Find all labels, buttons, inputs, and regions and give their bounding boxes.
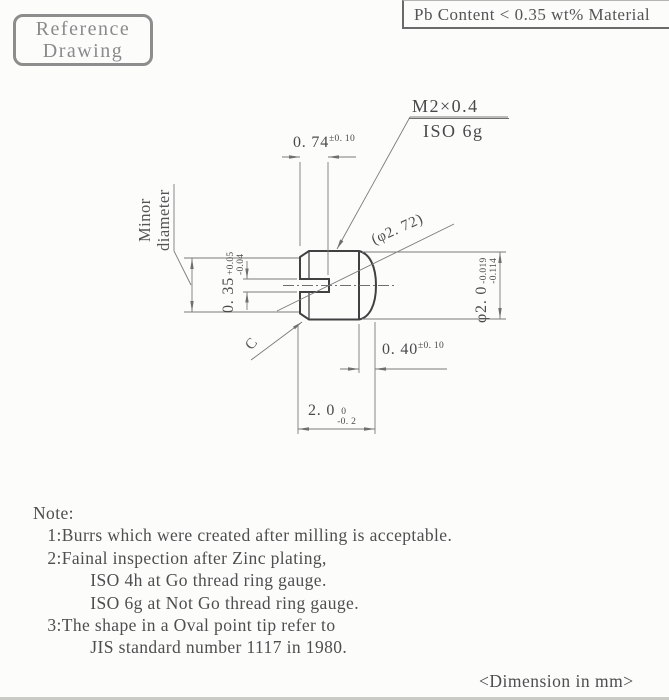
reference-drawing-stamp: Reference Drawing [13,14,153,66]
dim-slot-depth-value: 0. 74 [293,134,329,151]
thread-spec-callout: M2×0.4 ISO 6g [409,96,509,142]
stamp-line1: Reference [36,18,131,40]
note-line: 3:The shape in a Oval point tip refer to [33,614,452,636]
dim-overall-length-tol-upper: 0 [337,407,356,417]
minor-diameter-label-line2: diameter [154,189,173,251]
dim-tip-length: 0. 40±0. 10 [382,341,444,359]
dim-slot-width-tol-upper: +0.05 [226,252,236,275]
dim-slot-width-value: 0. 35 [220,277,237,313]
minor-diameter-label-line1: Minor [135,198,154,242]
note-line: JIS standard number 1117 in 1980. [33,636,452,658]
minor-diameter-label: Minor diameter [136,189,173,251]
note-line: ISO 6g at Not Go thread ring gauge. [33,592,452,614]
material-note-text: Pb Content < 0.35 wt% Material [414,5,650,24]
tip-radius-leader [277,224,454,311]
dimension-unit-note: <Dimension in mm> [479,671,634,692]
dim-major-dia: φ2. 0-0.019-0.114 [473,257,499,323]
note-line: ISO 4h at Go thread ring gauge. [33,569,452,591]
dim-overall-length-tol-lower: -0. 2 [337,417,356,427]
dim-major-dia-tol-lower: -0.114 [489,257,499,283]
thread-class: ISO 6g [409,119,509,142]
dim-overall-length: 2. 00-0. 2 [308,402,356,427]
dim-slot-depth-tol: ±0. 10 [329,134,355,144]
dim-tip-length-tol: ±0. 10 [418,341,444,351]
material-note-box: Pb Content < 0.35 wt% Material [402,0,669,29]
dim-slot-width: 0. 35+0.05-0.04 [220,252,246,313]
thread-spec: M2×0.4 [409,96,509,119]
dim-slot-width-tol-lower: -0.04 [236,252,246,275]
dim-slot-depth-lines [282,155,356,275]
note-line: 1:Burrs which were created after milling… [33,524,452,546]
dim-slot-depth: 0. 74±0. 10 [293,134,355,152]
dim-overall-length-value: 2. 0 [308,402,335,419]
dim-major-dia-tol-upper: -0.019 [479,257,489,283]
drawing-sheet: Reference Drawing Pb Content < 0.35 wt% … [0,0,669,700]
stamp-line2: Drawing [43,40,123,62]
dim-tip-length-value: 0. 40 [382,341,418,358]
dim-major-dia-value: φ2. 0 [473,286,490,323]
notes-block: Note: 1:Burrs which were created after m… [33,502,452,659]
chamfer-leader [251,322,302,360]
dimension-unit-text: <Dimension in mm> [479,671,634,691]
note-title: Note: [33,502,452,524]
note-line: 2:Fainal inspection after Zinc plating, [33,547,452,569]
